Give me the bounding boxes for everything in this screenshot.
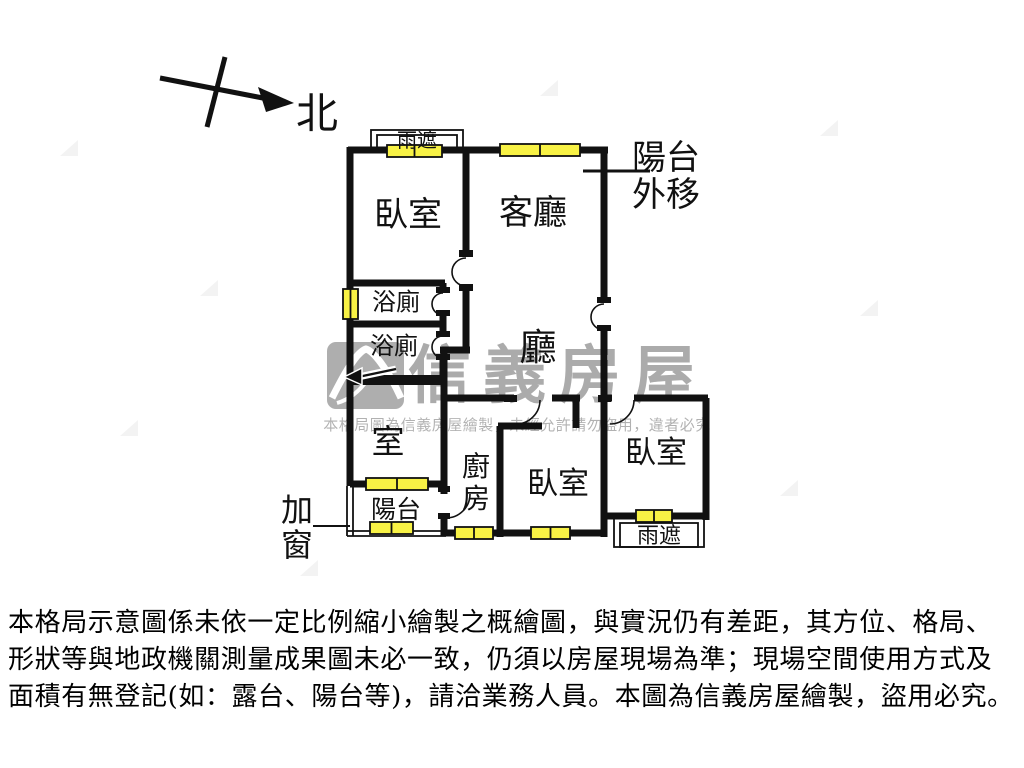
- window-bedroom-se-bottom: [636, 510, 672, 522]
- compass-arrowhead-icon: [258, 87, 294, 112]
- window-bathroom1-left: [343, 289, 358, 319]
- canopy-bottom-label: 雨遮: [637, 524, 681, 549]
- corridor-door-arc: [452, 258, 466, 286]
- room-label-bedroom-nw: 臥室: [374, 195, 442, 235]
- room-label-kitchen-2: 房: [462, 482, 490, 515]
- north-compass: 北: [160, 57, 338, 138]
- balcony-moved-label-2: 外移: [632, 175, 700, 215]
- disclaimer-line-2: 形狀等與地政機關測量成果圖未必一致，仍須以房屋現場為準；現場空間使用方式及: [8, 642, 1014, 679]
- disclaimer-text: 本格局示意圖係未依一定比例縮小繪製之概繪圖，與實況仍有差距，其方位、格局、 形狀…: [8, 605, 1014, 716]
- room-label-balcony-sw: 陽台: [371, 495, 421, 524]
- north-label: 北: [296, 89, 338, 138]
- window-living-top: [500, 144, 580, 156]
- window-room-sw: [366, 478, 428, 490]
- added-window-label-2: 窗: [281, 526, 313, 564]
- disclaimer-line-1: 本格局示意圖係未依一定比例縮小繪製之概繪圖，與實況仍有差距，其方位、格局、: [8, 605, 1014, 642]
- room-label-living: 客廳: [499, 193, 567, 233]
- window-bedroom-s-bottom: [531, 527, 570, 539]
- window-kitchen-bottom: [455, 527, 493, 539]
- disclaimer-line-3: 面積有無登記(如：露台、陽台等)，請洽業務人員。本圖為信義房屋繪製，盜用必究。: [8, 679, 1014, 716]
- canopy-top-label: 雨遮: [397, 128, 437, 152]
- room-label-bathroom2: 浴廁: [370, 332, 418, 360]
- room-label-bedroom-s: 臥室: [527, 466, 589, 502]
- room-label-hall: 廳: [520, 326, 557, 369]
- room-label-bedroom-se: 臥室: [625, 435, 687, 471]
- floorplan-image: 信義房屋 本格局圖為信義房屋繪製，未經允許請勿盜用，違者必究 北: [0, 0, 1024, 768]
- room-label-kitchen-1: 廚: [462, 450, 490, 483]
- room-label-bathroom1: 浴廁: [372, 288, 420, 316]
- added-window-label-1: 加: [281, 491, 313, 529]
- balcony-moved-label-1: 陽台: [632, 138, 700, 178]
- room-label-room-sw: 室: [372, 422, 405, 461]
